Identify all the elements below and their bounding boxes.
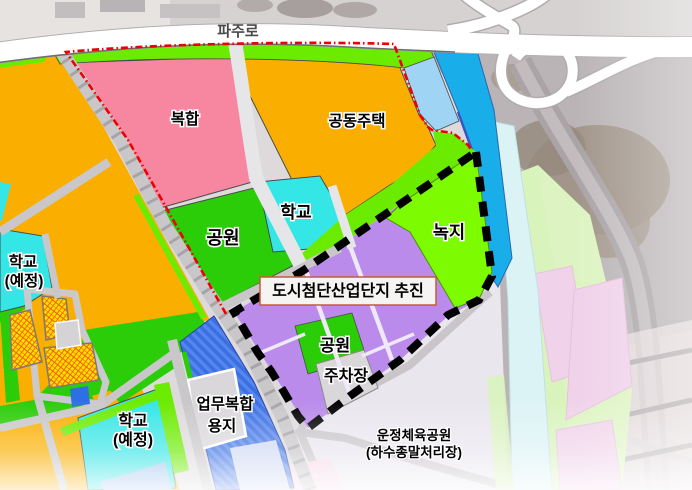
svg-text:(하수종말처리장): (하수종말처리장) xyxy=(366,444,462,460)
svg-text:녹지: 녹지 xyxy=(433,222,465,242)
svg-text:학교: 학교 xyxy=(9,253,38,271)
svg-text:운정체육공원: 운정체육공원 xyxy=(377,427,452,443)
svg-text:용지: 용지 xyxy=(208,417,237,435)
svg-text:복합: 복합 xyxy=(171,110,200,128)
svg-text:(예정): (예정) xyxy=(113,431,153,449)
svg-text:(예정): (예정) xyxy=(5,272,44,290)
svg-text:공동주택: 공동주택 xyxy=(328,112,385,130)
svg-text:파주로: 파주로 xyxy=(217,23,259,40)
svg-text:학교: 학교 xyxy=(280,203,312,222)
svg-text:학교: 학교 xyxy=(118,412,148,430)
svg-text:공원: 공원 xyxy=(320,336,350,355)
svg-text:공원: 공원 xyxy=(206,228,239,248)
svg-text:업무복합: 업무복합 xyxy=(196,395,254,413)
svg-text:주차장: 주차장 xyxy=(324,367,368,385)
svg-text:도시첨단산업단지 추진: 도시첨단산업단지 추진 xyxy=(272,281,424,300)
